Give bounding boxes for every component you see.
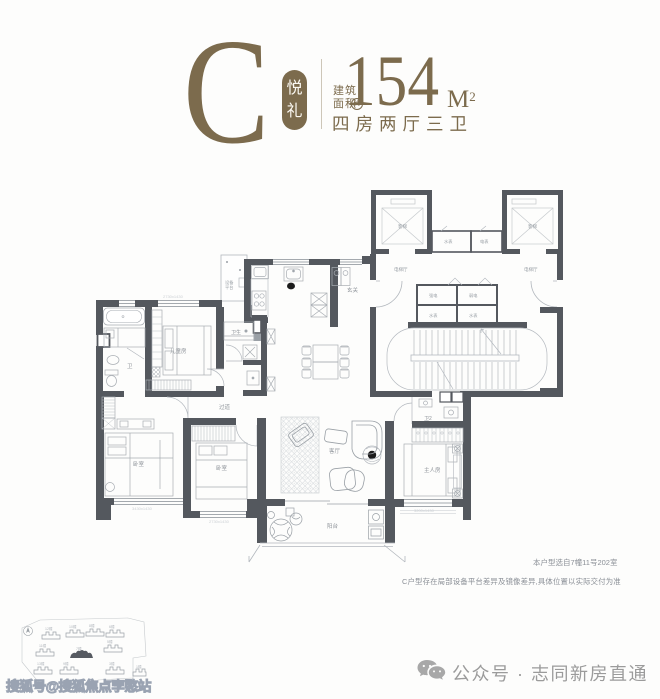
svg-text:主人房: 主人房 <box>424 466 441 474</box>
svg-text:5幢: 5幢 <box>107 639 113 644</box>
svg-text:8幢: 8幢 <box>89 623 95 628</box>
svg-text:13幢: 13幢 <box>37 661 45 666</box>
svg-text:1幢: 1幢 <box>136 664 142 669</box>
svg-text:过道: 过道 <box>219 403 231 411</box>
svg-text:6幢: 6幢 <box>109 624 115 629</box>
svg-text:阳台: 阳台 <box>327 522 339 530</box>
svg-text:12幢: 12幢 <box>45 626 53 631</box>
svg-text:卫: 卫 <box>127 363 133 370</box>
svg-text:3幢: 3幢 <box>109 661 115 666</box>
svg-text:水表: 水表 <box>469 312 478 319</box>
svg-text:9幢: 9幢 <box>63 661 69 666</box>
svg-text:玄关: 玄关 <box>347 286 359 294</box>
svg-text:儿童房: 儿童房 <box>170 347 187 355</box>
svg-text:11幢: 11幢 <box>39 643 47 648</box>
svg-text:卧室: 卧室 <box>216 464 228 472</box>
svg-text:电梯厅: 电梯厅 <box>524 266 538 273</box>
svg-text:强电: 强电 <box>429 292 438 299</box>
svg-text:水表: 水表 <box>444 238 453 245</box>
svg-text:2730x1430: 2730x1430 <box>209 519 230 524</box>
svg-text:电梯厅: 电梯厅 <box>394 266 408 273</box>
svg-text:客梯: 客梯 <box>528 223 537 230</box>
svg-text:水表: 水表 <box>429 312 438 319</box>
svg-text:10幢: 10幢 <box>69 624 77 629</box>
svg-text:卧室: 卧室 <box>133 460 145 468</box>
svg-text:电表: 电表 <box>480 238 489 245</box>
svg-text:弱电: 弱电 <box>469 292 478 299</box>
svg-text:7幢: 7幢 <box>76 646 82 651</box>
svg-text:3200x1430: 3200x1430 <box>414 508 435 513</box>
svg-text:客梯: 客梯 <box>398 223 407 230</box>
svg-text:3430x1430: 3430x1430 <box>132 506 153 511</box>
svg-text:客厅: 客厅 <box>329 447 341 455</box>
svg-text:2730x1430: 2730x1430 <box>163 294 184 299</box>
svg-text:卫生: 卫生 <box>231 329 241 336</box>
svg-text:平台: 平台 <box>225 284 233 291</box>
